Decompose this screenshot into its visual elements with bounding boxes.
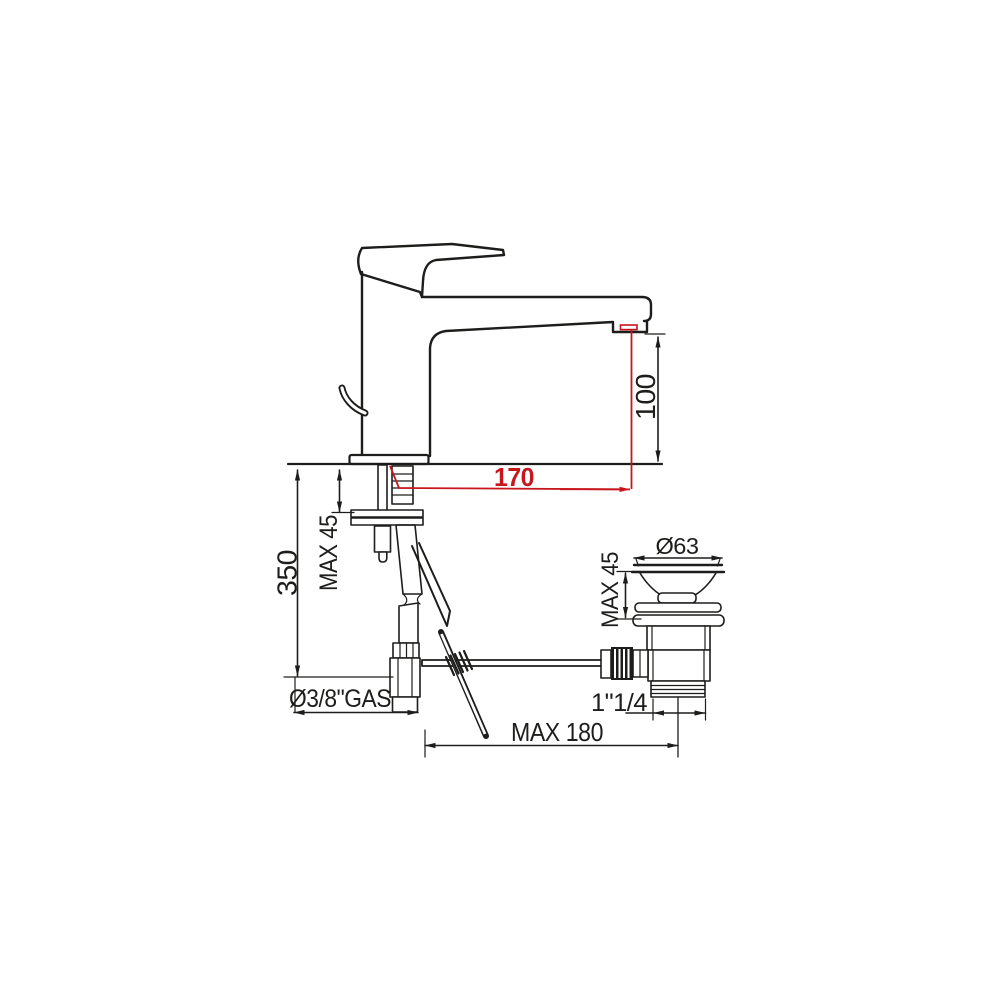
supply-hoses	[390, 525, 450, 712]
drain-plug-tab	[658, 593, 696, 603]
drain-body	[647, 626, 710, 681]
faucet-handle	[358, 244, 504, 297]
dim-label-waste-deck-max: MAX 45	[597, 552, 624, 628]
threaded-shank	[392, 466, 413, 504]
dim-label-rod-max: MAX 180	[511, 717, 603, 747]
dimension-d63: Ø63	[634, 533, 722, 566]
technical-drawing-page: 350 MAX 45 100 Ø3/8"GAS MAX 180 1"1/4 Ø6…	[0, 0, 1000, 1000]
hose-nut	[390, 658, 420, 712]
dim-label-waste-diameter: Ø63	[656, 533, 699, 559]
mounting-stud-tip	[379, 552, 387, 562]
faucet-spout-arm	[362, 272, 651, 456]
drawing-canvas: 350 MAX 45 100 Ø3/8"GAS MAX 180 1"1/4 Ø6…	[0, 0, 1000, 1000]
drain-washer-lower	[633, 615, 724, 626]
mounting-stud-sleeve	[375, 526, 391, 552]
drain-tailpiece	[651, 681, 705, 697]
dim-label-inlet-thread: Ø3/8"GAS	[289, 685, 391, 713]
drain-flange-taper	[640, 573, 716, 595]
mounting-washer-lower	[351, 518, 423, 525]
dim-label-deck-max: MAX 45	[315, 515, 343, 591]
drain-flange-top	[632, 565, 724, 572]
drain-washer-upper	[635, 603, 721, 612]
dimension-max180: MAX 180	[425, 717, 678, 757]
drain-ball-joint	[601, 647, 648, 680]
dim-label-hose-length: 350	[272, 550, 303, 596]
hose-end-fitting	[393, 643, 419, 658]
dim-label-spout-height: 100	[630, 374, 661, 420]
faucet-base-plate	[350, 455, 429, 464]
diagonal-linkage-rod-core	[442, 634, 486, 734]
mounting-washer-upper	[351, 510, 423, 517]
dim-label-spout-reach: 170	[494, 462, 534, 492]
dimension-max45-deck: MAX 45	[315, 470, 354, 591]
supply-hose-lower	[399, 603, 418, 643]
faucet-assembly	[342, 244, 651, 464]
dimension-100: 100	[630, 334, 665, 461]
dim-label-waste-thread: 1"1/4	[591, 689, 648, 717]
